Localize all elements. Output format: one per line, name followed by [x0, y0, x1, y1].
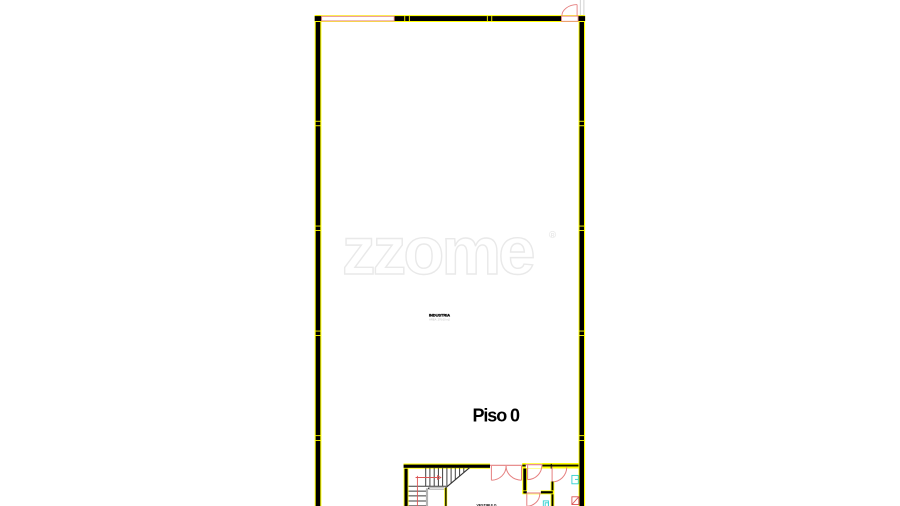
svg-text:zzome: zzome — [342, 214, 533, 289]
svg-text:INDUSTRIA: INDUSTRIA — [429, 312, 450, 317]
svg-text:Piso 0: Piso 0 — [473, 406, 521, 426]
svg-text:R: R — [551, 233, 555, 239]
svg-text:AREA: 276.00 m2: AREA: 276.00 m2 — [429, 317, 450, 321]
